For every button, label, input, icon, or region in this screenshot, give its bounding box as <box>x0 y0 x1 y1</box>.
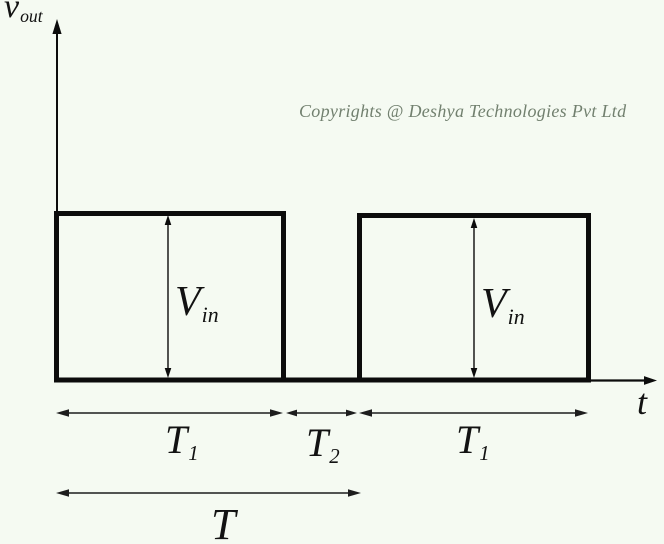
waveform-figure: vout Copyrights @ Deshya Technologies Pv… <box>0 0 664 544</box>
t1-label-1-sub: 1 <box>188 442 198 465</box>
t1-label-2-sub: 1 <box>479 442 489 465</box>
pulse-1-rect <box>57 214 284 381</box>
y-axis-label-sub: out <box>20 6 43 26</box>
x-axis-label: t <box>637 384 647 420</box>
copyright-text: Copyrights @ Deshya Technologies Pvt Ltd <box>299 101 626 122</box>
t2-dim-arrow <box>286 410 357 417</box>
t2-dim-arrow-head-left <box>286 410 297 417</box>
t2-dim-arrow-head-right <box>346 410 357 417</box>
t1-dim-arrow-2-head-right <box>575 409 588 416</box>
vin-arrow-2-head-top <box>471 218 478 228</box>
y-axis-label: vout <box>4 0 43 24</box>
t1-dim-arrow-1 <box>56 409 283 416</box>
y-axis-arrowhead <box>52 19 61 34</box>
period-label: T <box>211 503 235 544</box>
t1-label-2: T1 <box>456 420 490 460</box>
t2-label-main: T <box>306 420 328 465</box>
vin-label-2: Vin <box>481 283 525 325</box>
y-axis-label-main: v <box>4 0 19 25</box>
period-dim-arrow-head-left <box>56 489 69 496</box>
vin-arrow-1 <box>165 215 172 378</box>
t1-label-1-main: T <box>165 417 187 462</box>
t1-dim-arrow-1-head-left <box>56 409 69 416</box>
t1-dim-arrow-2-head-left <box>359 409 372 416</box>
vin-arrow-2 <box>471 218 478 378</box>
vin-label-2-main: V <box>481 281 507 327</box>
vin-arrow-1-head-top <box>165 215 172 225</box>
t2-label-sub: 2 <box>329 445 339 468</box>
vin-arrow-1-head-bottom <box>165 368 172 378</box>
vin-label-1-main: V <box>175 279 201 325</box>
vin-label-1-sub: in <box>202 303 219 327</box>
vin-arrow-2-head-bottom <box>471 368 478 378</box>
vin-label-1: Vin <box>175 281 219 323</box>
vin-label-2-sub: in <box>508 305 525 329</box>
t1-dim-arrow-1-head-right <box>270 409 283 416</box>
t1-label-1: T1 <box>165 420 199 460</box>
t2-label: T2 <box>306 423 340 463</box>
t1-dim-arrow-2 <box>359 409 588 416</box>
period-dim-arrow <box>56 489 361 496</box>
period-dim-arrow-head-right <box>348 489 361 496</box>
t1-label-2-main: T <box>456 417 478 462</box>
